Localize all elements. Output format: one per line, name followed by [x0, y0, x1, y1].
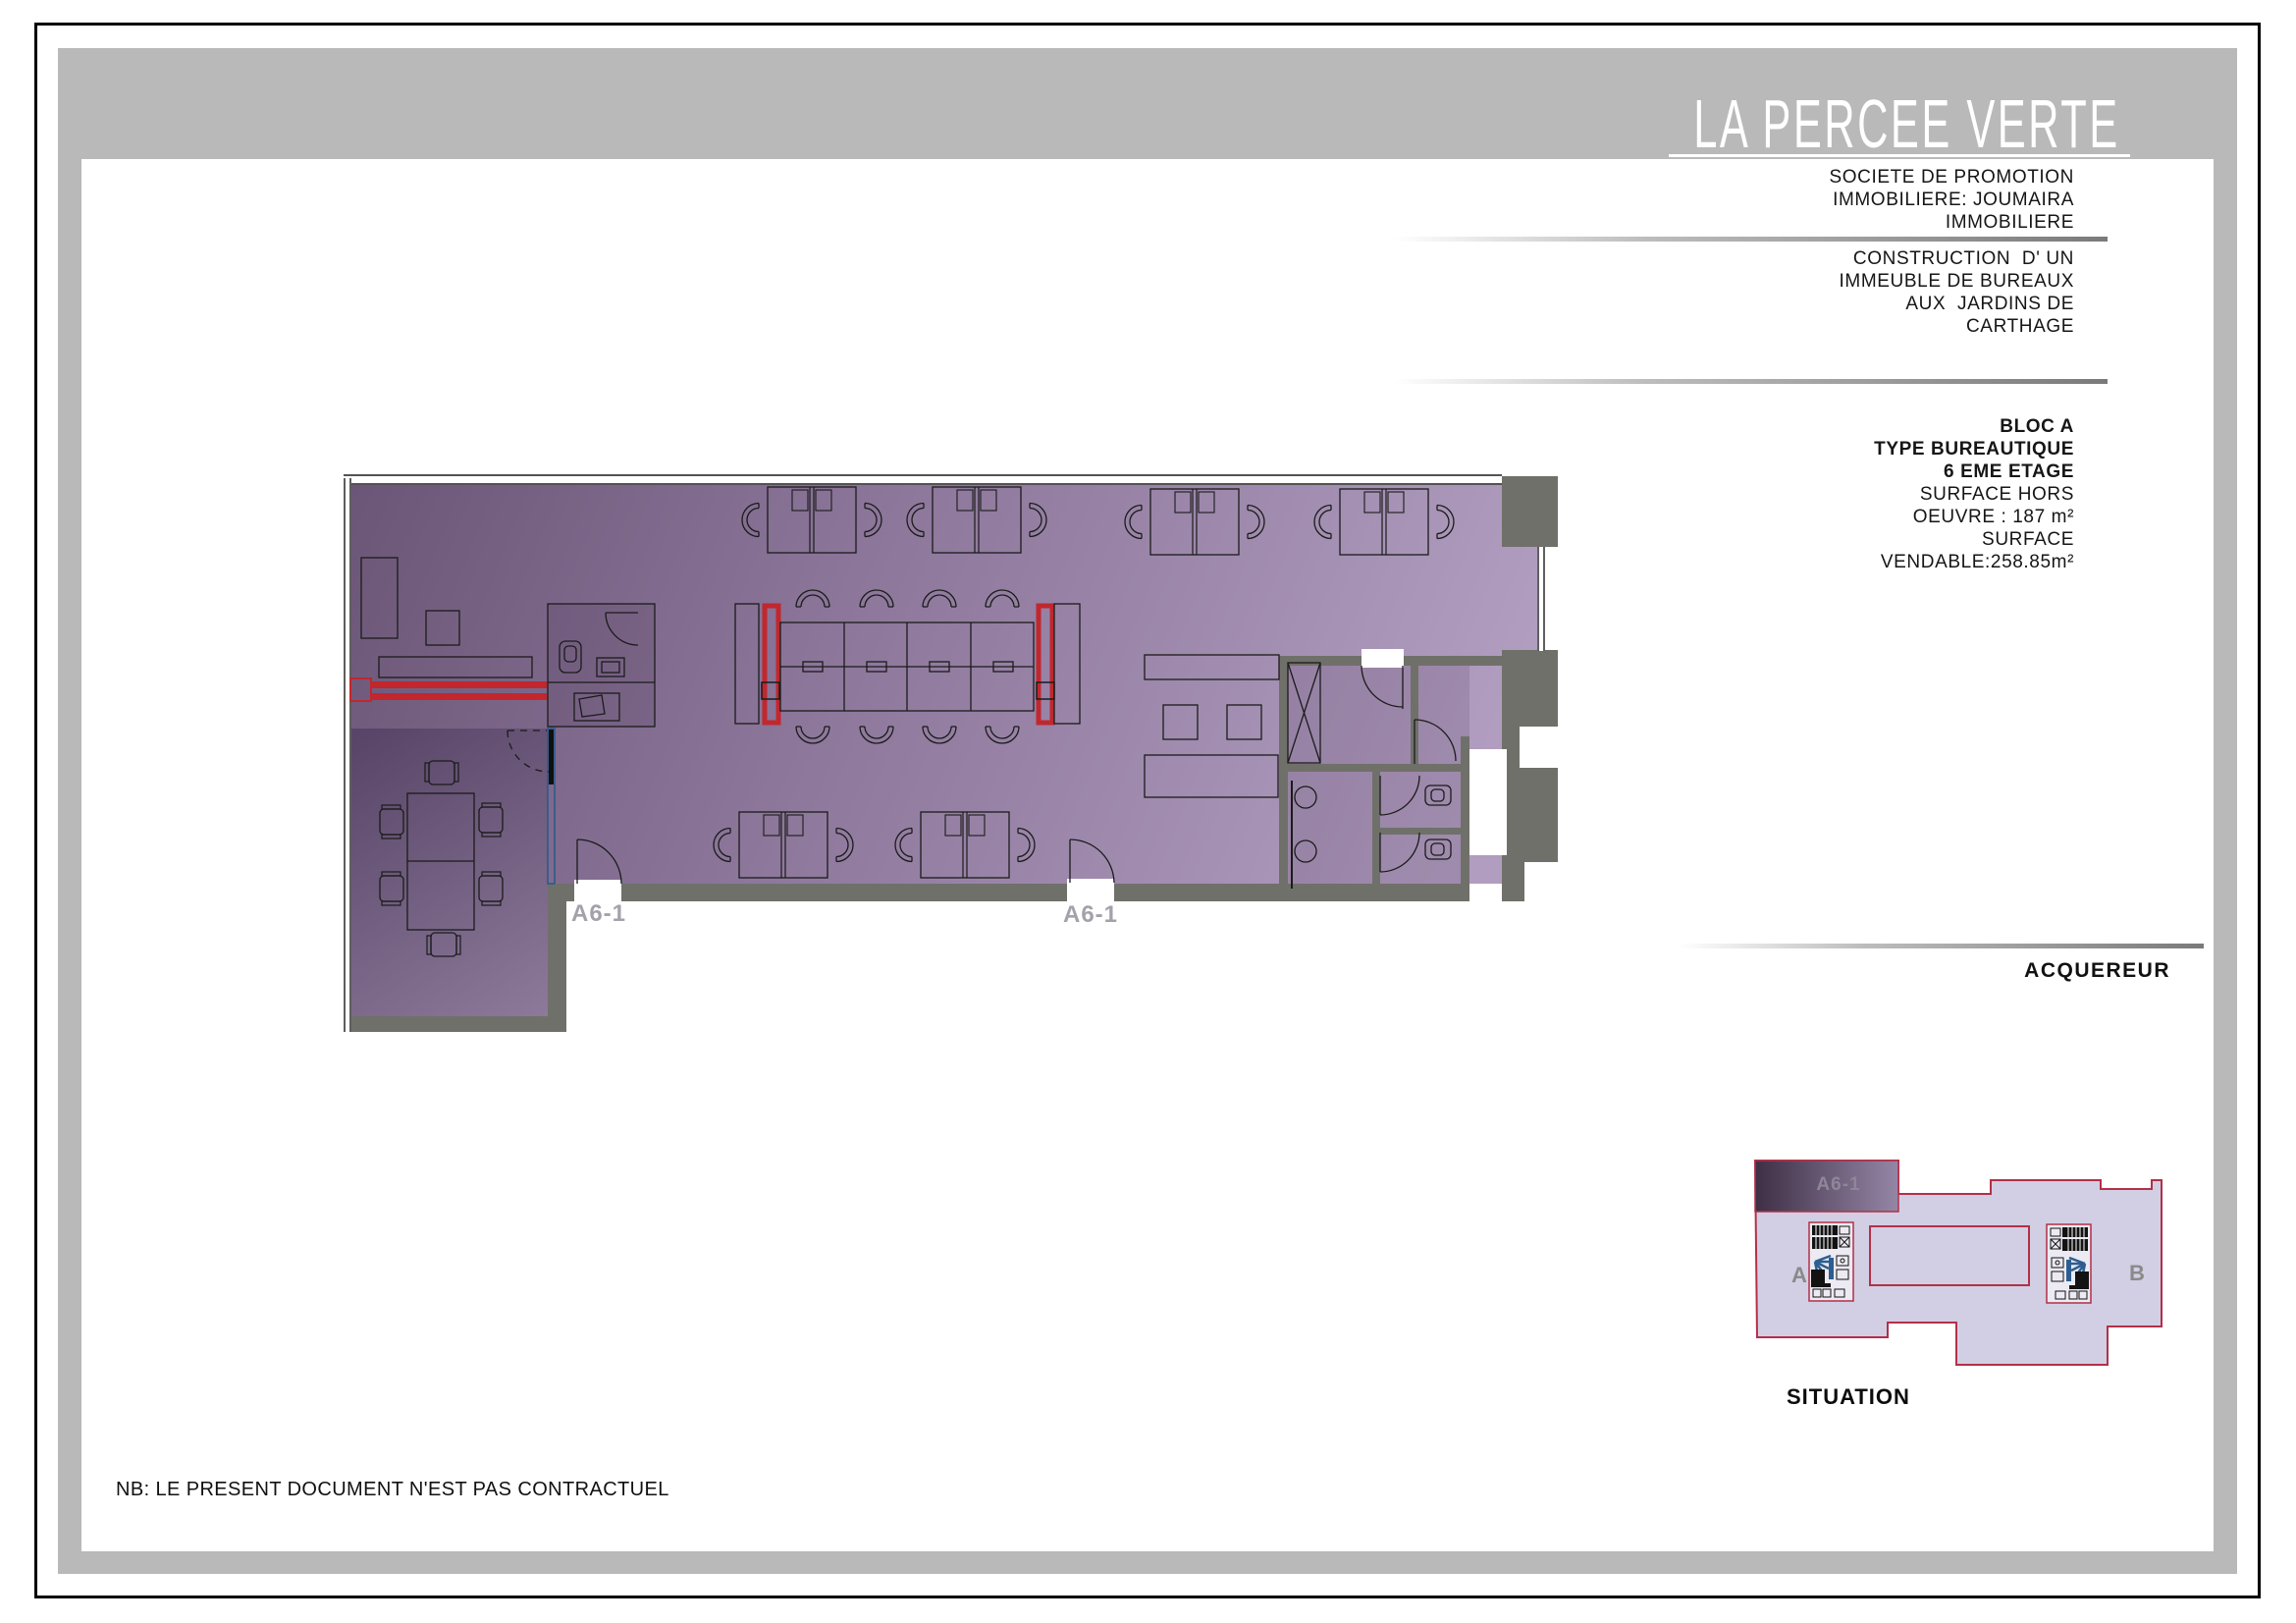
plan-sheet-page: { "header": { "title": "LA PERCEE VERTE"… — [0, 0, 2296, 1623]
block-a-label: A — [1785, 1263, 1814, 1288]
door-opening-2 — [1067, 879, 1114, 902]
core-a — [1809, 1222, 1853, 1301]
block-b-label: B — [2122, 1261, 2152, 1286]
situation-caption: SITUATION — [1787, 1384, 1910, 1410]
disclaimer-note: NB: LE PRESENT DOCUMENT N'EST PAS CONTRA… — [116, 1479, 669, 1501]
elevator-shaft — [1469, 749, 1507, 855]
unit-label: A6-1 — [555, 900, 643, 928]
unit-label: A6-1 — [1046, 901, 1135, 929]
bottom-wall — [548, 884, 1469, 901]
door-opening-wc — [1362, 649, 1404, 668]
core-b — [2047, 1224, 2091, 1303]
meeting-room-fill — [350, 729, 548, 1016]
corner-column — [1502, 476, 1558, 547]
situation-unit-label: A6-1 — [1804, 1174, 1873, 1196]
floor-plan-drawing — [0, 0, 2296, 1623]
office-floor-fill — [350, 485, 1538, 1016]
